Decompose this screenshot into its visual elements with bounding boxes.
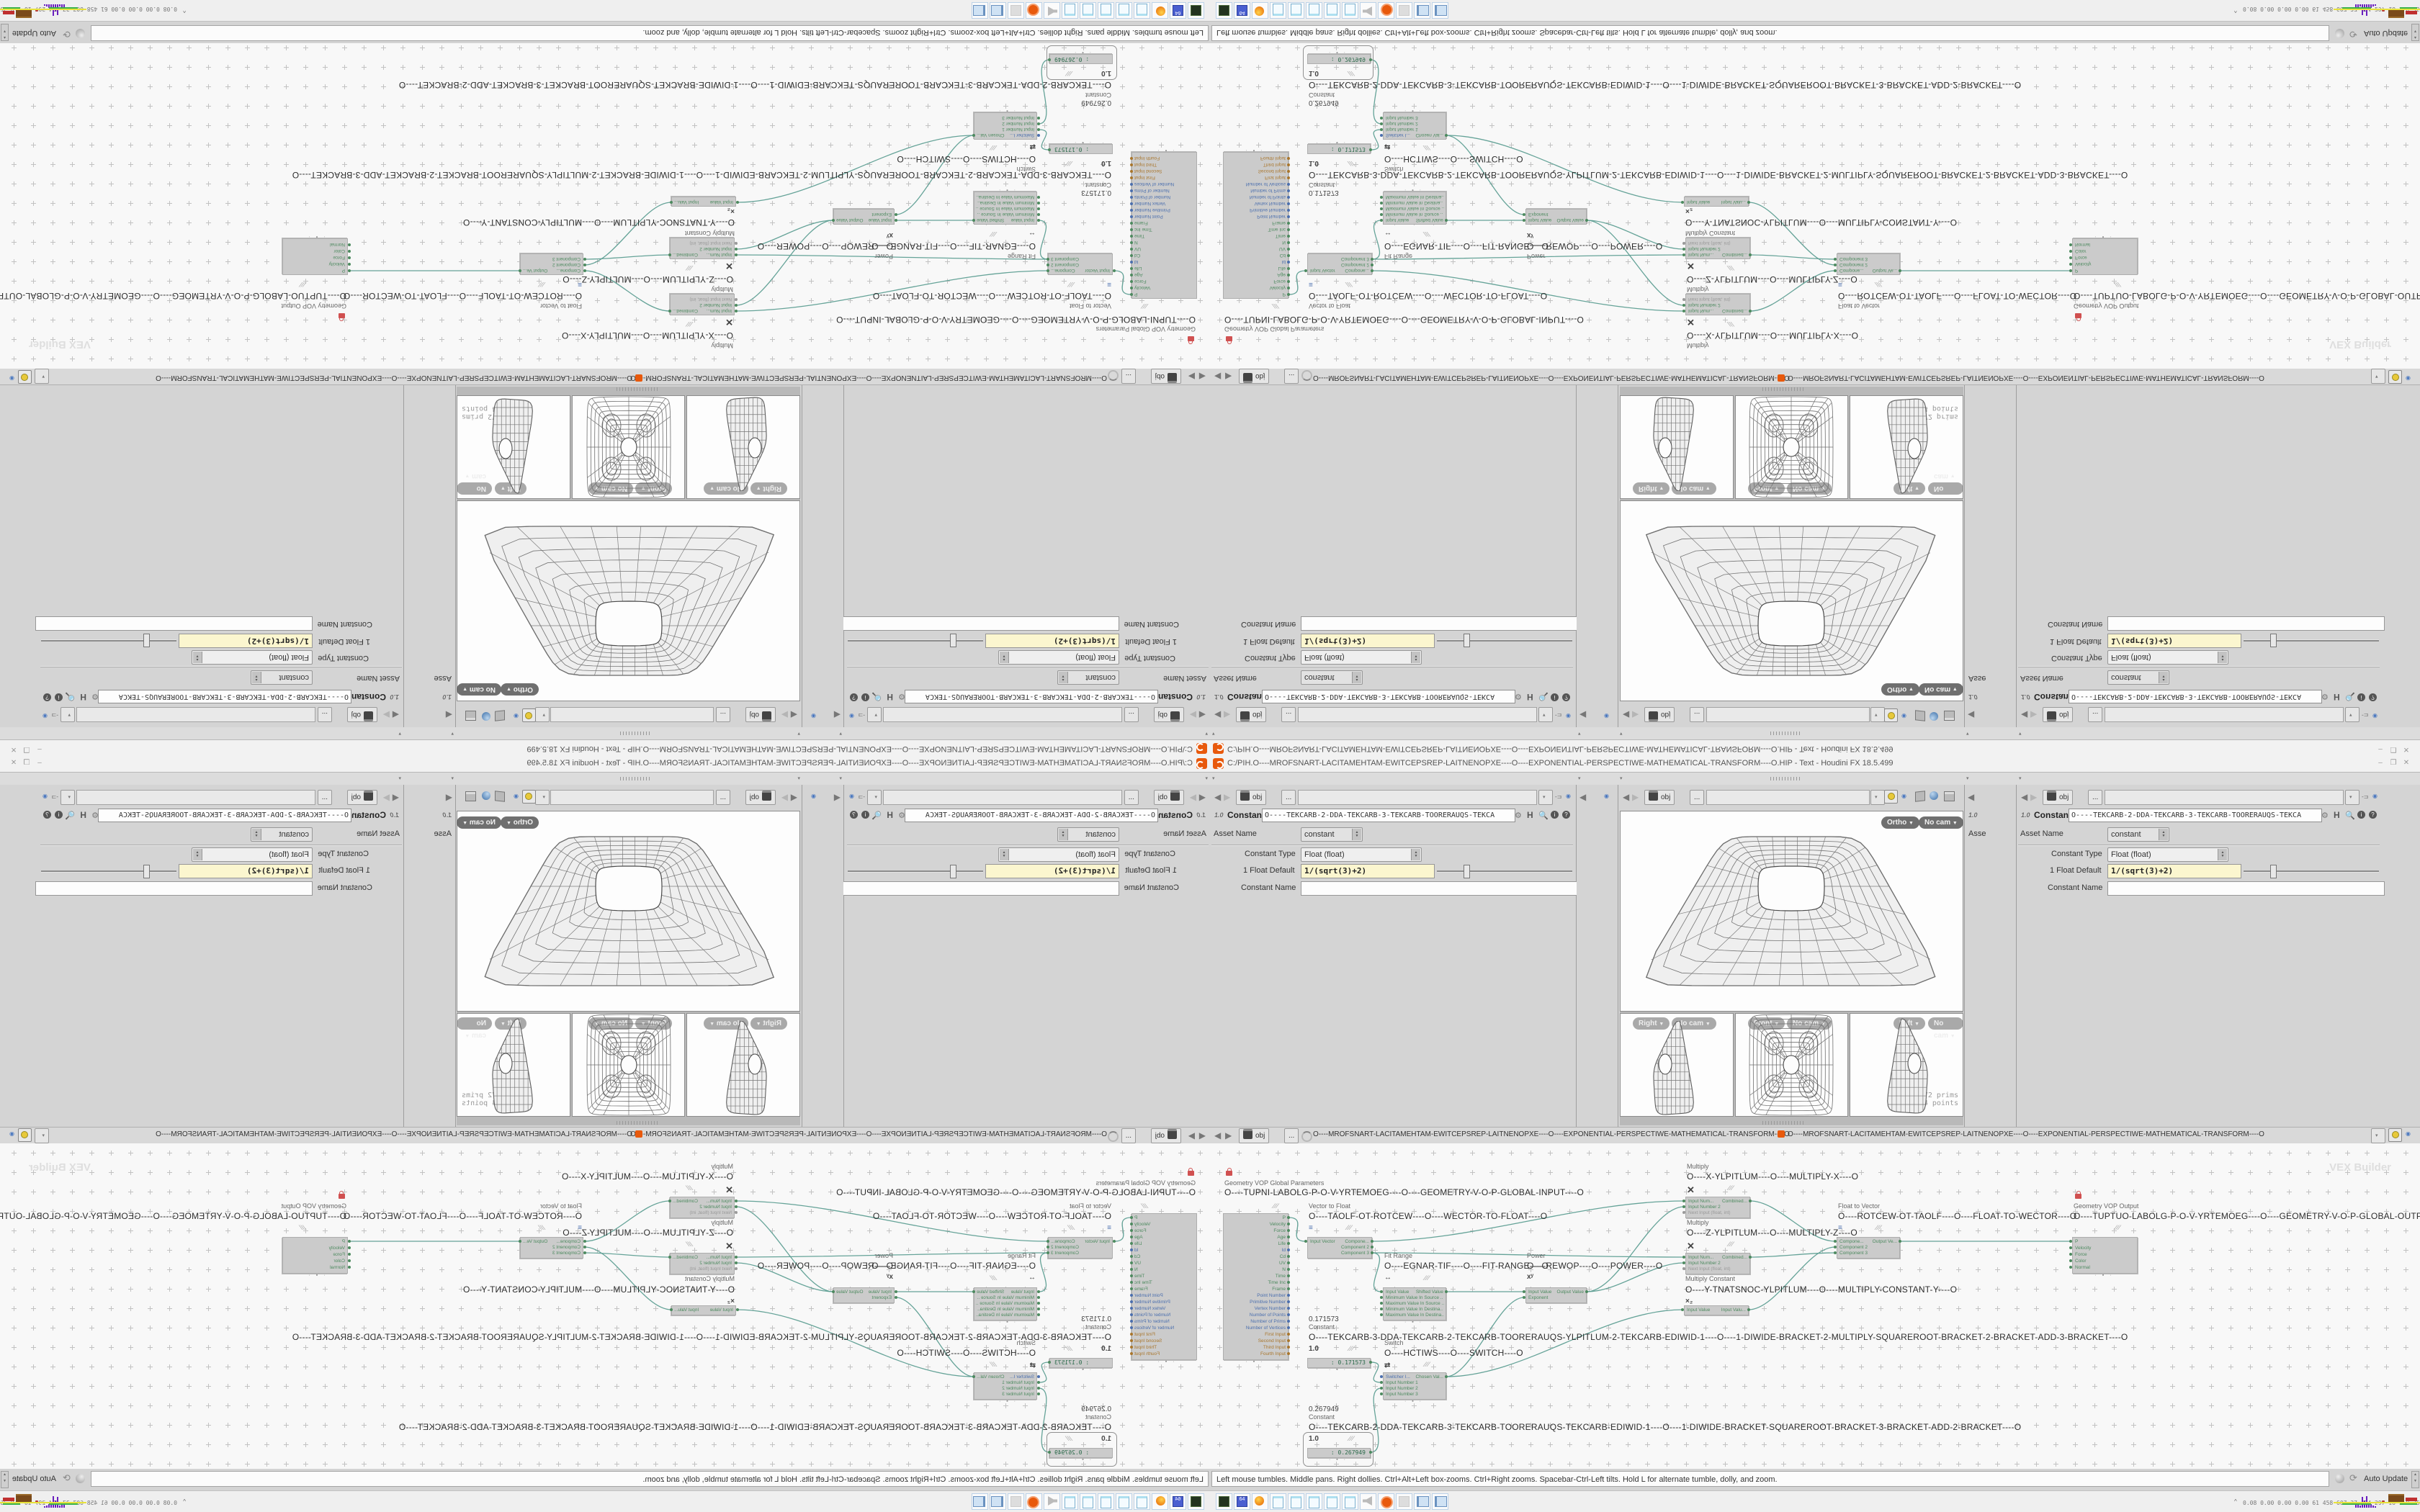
input-dot[interactable] [1523,213,1525,216]
node-body[interactable]: Input Num...Combined...Input Number 2Nex… [670,238,735,259]
input-port-label[interactable]: Input Number 3 [1002,1392,1034,1398]
grid-panel-icon[interactable] [1944,711,1955,721]
taskbar-firefox-icon[interactable] [1252,2,1268,19]
close-button[interactable]: ✕ [2401,744,2411,754]
output-port-label[interactable]: Component 3 [1051,1251,1079,1256]
slider-track[interactable] [1437,639,1572,642]
pane-collapse-icon[interactable]: ▾ [1205,775,1208,781]
path-field[interactable] [76,790,315,805]
forward-icon[interactable]: ▶ [781,792,788,802]
asset-name-dropdown[interactable]: constant▲▼ [251,827,313,842]
output-dot[interactable] [1287,1229,1290,1232]
breadcrumb-obj[interactable]: obj [1154,790,1184,805]
input-dot[interactable] [348,256,351,259]
taskbar-houdini-icon[interactable] [1378,1493,1394,1510]
output-port-label[interactable]: Number of Points [1250,194,1286,199]
node-body[interactable]: Switcher I...Chosen Val...Input Number 1… [974,112,1037,140]
input-port-label[interactable]: Minimum Value In Destina.. [1386,199,1443,205]
output-port-label[interactable]: UV [1279,1261,1286,1266]
input-dot[interactable] [1304,1240,1307,1243]
output-port-label[interactable]: Input Valu... [1721,199,1746,204]
pane-drag-handle[interactable] [1770,732,1802,735]
output-port-label[interactable]: Combined... [1722,251,1747,257]
cam-pill[interactable]: No cam ▼ [1919,816,1963,829]
path-field[interactable] [1706,707,1870,722]
window-titlebar[interactable]: C:/PIH.O----MROFSNART-LACITAMEHTAM-EWITC… [0,739,1210,756]
back-icon[interactable]: ◀ [791,792,797,802]
input-dot[interactable] [348,243,351,246]
forward-icon[interactable]: ▶ [383,710,390,720]
output-dot[interactable] [1287,241,1290,244]
gear-icon[interactable]: ⚙ [91,811,99,820]
output-dot[interactable] [1287,1300,1290,1303]
input-dot[interactable] [1037,219,1040,222]
forward-icon[interactable]: ▶ [1224,792,1230,802]
breadcrumb-more[interactable]: ... [318,707,332,722]
node-body[interactable]: Input Num...Combined...Input Number 2Nex… [670,294,735,315]
input-dot[interactable] [736,201,739,204]
output-dot[interactable] [1130,228,1133,231]
pane-drag-handle[interactable] [1762,387,1806,391]
constant-vop-icon[interactable]: 1.0 [1214,693,1224,701]
input-dot[interactable] [895,1296,897,1299]
output-port-label[interactable]: Output Ve... [1873,267,1897,273]
float-default-field[interactable]: 1/(sqrt(3)+2) [2107,864,2241,878]
search-icon[interactable]: 🔍 [1538,811,1549,820]
back-icon[interactable]: ◀ [791,710,797,720]
input-dot[interactable] [1037,1392,1040,1395]
highlight-toggle[interactable] [1884,790,1898,804]
float-default-field[interactable]: 1/(sqrt(3)+2) [2107,634,2241,648]
pane-collapse-icon[interactable]: ▾ [797,775,800,781]
node-body[interactable]: Input ValueOutput ValueExponent [1525,209,1587,225]
output-dot[interactable] [1287,1268,1290,1271]
slider-handle[interactable] [950,865,956,878]
input-port-label[interactable]: Maximum Value In Source .. [976,1301,1034,1307]
refresh-icon[interactable]: ⟳ [63,1472,71,1484]
asset-name-dropdown[interactable]: constant▲▼ [2107,827,2169,842]
pin-icon[interactable]: -⊐ [2362,712,2368,719]
asset-name-dropdown[interactable]: constant▲▼ [1057,827,1119,842]
taskbar-notepad-icon[interactable] [1270,2,1286,19]
output-dot[interactable] [1287,170,1290,173]
output-port-label[interactable]: Input Valu... [674,199,699,204]
input-port-label[interactable]: Switcher I... [1386,1374,1410,1380]
output-port-label[interactable]: Id [1282,258,1286,264]
path-dropdown[interactable]: ▾ [1870,707,1885,722]
output-port-label[interactable]: Component 2 [1341,1245,1369,1251]
pane-drag-handle[interactable] [1770,777,1802,780]
output-dot[interactable] [1287,1352,1290,1355]
path-field[interactable] [883,707,1122,722]
input-dot[interactable] [735,1200,738,1202]
output-port-label[interactable]: Primitive Number [1250,207,1286,212]
node-body[interactable]: : 0.171573 [1307,1358,1371,1368]
input-port-label[interactable]: Component 2 [552,261,581,267]
node-name[interactable]: O----ROTCEW-OT-TAOLF----O----FLOAT-TO-WE… [344,291,582,301]
output-dot[interactable] [1130,170,1133,173]
cam-pill[interactable]: No cam ▼ [457,482,492,495]
forward-icon[interactable]: ▶ [1632,792,1639,802]
constant-type-dropdown[interactable]: Float (float)▲▼ [192,650,313,665]
tray-caret[interactable]: ^ [2234,1498,2237,1505]
back-icon[interactable]: ◀ [1199,792,1206,802]
input-dot[interactable] [1037,1313,1040,1316]
output-dot[interactable] [1287,1223,1290,1225]
back-icon[interactable]: ◀ [1214,792,1221,802]
output-dot[interactable] [668,1256,671,1259]
output-port-label[interactable]: Force [1273,278,1286,284]
output-dot[interactable] [1287,183,1290,186]
linked-icon[interactable]: ◉ [811,713,816,719]
asset-name-dropdown[interactable]: constant▲▼ [1301,827,1363,842]
output-dot[interactable] [1287,248,1290,251]
output-dot[interactable] [1130,1352,1133,1355]
input-port-label[interactable]: Input Value [1011,1290,1034,1295]
taskbar-scroll-icon[interactable] [972,1493,988,1510]
constant-name-field[interactable] [35,616,313,631]
taskbar-notepad-icon[interactable] [1288,1493,1304,1510]
input-dot[interactable] [348,1240,351,1243]
input-dot[interactable] [735,298,738,301]
input-port-label[interactable]: Next Input (float, int) [1688,1210,1731,1216]
input-port-label[interactable]: Input Number 3 [1002,114,1034,120]
output-dot[interactable] [1130,1223,1133,1225]
input-dot[interactable] [1037,117,1040,120]
output-dot[interactable] [1899,1240,1901,1243]
output-port-label[interactable]: Combined... [673,251,698,257]
output-port-label[interactable]: N [1282,1267,1286,1273]
forward-icon[interactable]: ▶ [1224,710,1230,720]
output-dot[interactable] [1130,235,1133,238]
persp-pill[interactable]: Ortho ▼ [1881,683,1919,696]
output-dot[interactable] [1287,293,1290,296]
right-pill[interactable]: Right ▼ [1633,1017,1670,1030]
back-icon[interactable]: ◀ [1199,710,1206,720]
input-port-label[interactable]: Input Num... [1688,251,1713,257]
pane-collapse-icon[interactable]: ▾ [398,731,401,737]
linked-icon[interactable]: ◉ [9,1130,14,1137]
taskbar-notepad-icon[interactable] [1306,1493,1322,1510]
input-port-label[interactable]: Component 3 [1839,256,1868,261]
input-port-label[interactable]: Color [333,248,345,253]
cam-pill[interactable]: No cam ▼ [588,482,633,495]
breadcrumb-more[interactable]: ... [1121,369,1136,384]
breadcrumb-obj[interactable]: obj [1239,1128,1269,1143]
input-port-label[interactable]: Switcher I... [1010,132,1034,138]
input-port-label[interactable]: Input Num... [707,251,732,257]
node-name[interactable]: O----REWOP----O----POWER----O [1527,241,1662,251]
output-port-label[interactable]: Number of Vertices [1246,1326,1286,1331]
output-port-label[interactable]: Velocity [1134,284,1150,290]
output-dot[interactable] [1747,1308,1750,1311]
input-dot[interactable] [2069,263,2072,266]
output-dot[interactable] [1047,1240,1049,1243]
linked-icon[interactable]: ◉ [514,793,519,799]
output-port-label[interactable]: Cd [1134,1254,1140,1260]
viewport-area[interactable]: Ortho ▼ No cam ▼ Right ▼ No cam ▼ Front … [457,811,800,1125]
output-dot[interactable] [1047,258,1049,261]
output-dot[interactable] [1371,1246,1373,1248]
output-port-label[interactable]: Input Valu... [674,1308,699,1313]
output-dot[interactable] [1287,215,1290,218]
node-body[interactable]: Input ValueShifted ValueMinimum Value In… [1383,1287,1446,1320]
node-body[interactable]: Input Num...Combined...Input Number 2Nex… [670,1253,735,1274]
search-icon[interactable]: 🔍 [2345,811,2355,820]
slider-handle[interactable] [1464,634,1470,647]
slider-handle[interactable] [143,634,150,647]
input-dot[interactable] [583,1251,586,1254]
output-dot[interactable] [1287,228,1290,231]
highlight-toggle[interactable] [18,370,32,384]
output-dot[interactable] [1371,269,1373,272]
output-dot[interactable] [1048,148,1051,151]
node-body[interactable]: Input VectorCompone...Component 2Compone… [1048,253,1113,275]
path-field[interactable] [2105,707,2344,722]
linked-icon[interactable]: ◉ [2406,375,2411,382]
output-port-label[interactable]: Combined... [673,1199,698,1205]
breadcrumb-more[interactable]: ... [318,790,332,805]
output-port-label[interactable]: Life [1134,1241,1142,1247]
persp-view[interactable] [457,811,800,1012]
node-name[interactable]: O----TEKCARB-3-DDA-TEKCARB-2-TEKCARB-TOO… [1309,1332,2128,1342]
node-body[interactable]: PVelocityForceAgeLifeIdCdUVNTimeTime Inc… [1223,152,1289,299]
node-name-field[interactable]: O----TEKCARB-2-DDA-TEKCARB-3-TEKCARB-TOO… [98,809,351,822]
output-dot[interactable] [832,1290,835,1293]
node-body[interactable]: Compone...Output Ve...Component 2Compone… [1837,253,1900,275]
output-dot[interactable] [1130,1255,1133,1258]
output-dot[interactable] [1130,261,1133,264]
output-port-label[interactable]: UV [1134,1261,1141,1266]
input-port-label[interactable]: Component 2 [1839,1245,1868,1251]
input-port-label[interactable]: Minimum Value In Source .. [977,211,1034,217]
houdini-help-icon[interactable]: H [1527,692,1533,702]
output-dot[interactable] [1287,222,1290,225]
output-dot[interactable] [1371,264,1373,266]
taskbar-speaker-icon[interactable] [1360,1493,1376,1510]
linked-icon[interactable]: ◉ [9,375,14,382]
output-dot[interactable] [1287,267,1290,270]
input-dot[interactable] [1681,201,1684,204]
output-dot[interactable] [1287,157,1290,160]
path-field[interactable] [76,707,315,722]
forward-icon[interactable]: ▶ [1190,792,1196,802]
info-icon[interactable]: i [1551,693,1559,701]
node-name[interactable]: O----EGNAR-TIF----O----FIT-RANGE----O [1384,241,1549,251]
output-port-label[interactable]: Fourth Input [1260,1351,1286,1357]
input-dot[interactable] [1037,1375,1040,1378]
taskbar-houdini-icon[interactable] [1026,2,1042,19]
input-dot[interactable] [1682,1211,1685,1214]
right-pill[interactable]: Right ▼ [1633,482,1670,495]
input-dot[interactable] [895,219,897,222]
input-dot[interactable] [1380,1392,1383,1395]
input-dot[interactable] [1834,269,1837,272]
taskbar-console-icon[interactable] [1188,1493,1204,1510]
input-port-label[interactable]: Component 3 [1839,1251,1868,1256]
network-editor[interactable]: VEX Builder Geometry VOP Global Paramete… [0,43,1210,369]
input-port-label[interactable]: Minimum Value In Source .. [1386,1295,1443,1301]
taskbar-notepad-icon[interactable] [1324,1493,1340,1510]
output-dot[interactable] [1287,1346,1290,1349]
viewport-area[interactable]: Ortho ▼ No cam ▼ Right ▼ No cam ▼ Front … [457,387,800,701]
float-default-field[interactable]: 1/(sqrt(3)+2) [985,634,1119,648]
network-editor[interactable]: VEX Builder Geometry VOP Global Paramete… [1210,43,2420,369]
output-dot[interactable] [1130,1333,1133,1336]
output-dot[interactable] [1047,1246,1049,1248]
input-port-label[interactable]: Velocity [2075,1246,2091,1251]
float-default-field[interactable]: 1/(sqrt(3)+2) [179,634,313,648]
input-port-label[interactable]: Input Number 1 [1002,126,1034,132]
output-port-label[interactable]: Vertex Number [1134,1306,1165,1312]
back-icon[interactable]: ◀ [1968,792,1974,802]
output-port-label[interactable]: N [1134,1267,1138,1273]
node-name[interactable]: O----Y-TNATSNOC-YLPITLUM----O----MULTIPL… [1685,217,1957,228]
input-port-label[interactable]: Velocity [2075,261,2091,266]
input-port-label[interactable]: Input Number 3 [1386,1392,1418,1398]
constant-type-dropdown[interactable]: Float (float)▲▼ [192,847,313,862]
help-icon[interactable]: ? [1562,811,1570,819]
output-dot[interactable] [1130,1307,1133,1310]
cam-pill[interactable]: No cam ▼ [704,482,748,495]
output-port-label[interactable]: Primitive Number [1134,207,1170,212]
output-port-label[interactable]: Combined... [1722,1255,1747,1261]
input-port-label[interactable]: Minimum Value In Source .. [977,1295,1034,1301]
pin-icon[interactable]: -⊐ [1555,712,1561,719]
output-dot[interactable] [1047,264,1049,266]
highlight-toggle[interactable] [2388,1128,2402,1142]
input-port-label[interactable]: Input Value [710,199,733,204]
input-port-label[interactable]: Input Number 1 [1002,1380,1034,1386]
input-dot[interactable] [735,304,738,307]
taskbar-notepad-icon[interactable] [1080,2,1096,19]
node-name-field[interactable]: O----TEKCARB-2-DDA-TEKCARB-3-TEKCARB-TOO… [1262,690,1515,703]
houdini-help-icon[interactable]: H [2334,692,2340,702]
output-port-label[interactable]: Shifted Value [1416,1290,1443,1295]
output-port-label[interactable]: First Input [1134,1332,1155,1338]
path-field[interactable] [550,790,714,805]
taskbar-console-icon[interactable] [1216,2,1232,19]
pin-icon[interactable]: -⊐ [52,712,58,719]
forward-icon[interactable]: ▶ [2030,710,2037,720]
gear-icon[interactable]: ⚙ [898,692,905,701]
node-body[interactable]: Input ValueShifted ValueMinimum Value In… [974,192,1037,225]
viewport-area[interactable]: Ortho ▼ No cam ▼ Right ▼ No cam ▼ Front … [1620,387,1963,701]
output-dot[interactable] [1287,1294,1290,1297]
input-port-label[interactable]: Input Number 2 [1688,1261,1721,1266]
input-port-label[interactable]: Input Num... [707,1255,732,1261]
input-port-label[interactable]: Input Value [1386,217,1409,222]
output-port-label[interactable]: Age [1134,1235,1143,1241]
pane-collapse-icon[interactable]: ▾ [1620,731,1623,737]
output-port-label[interactable]: P [1134,1215,1137,1221]
input-port-label[interactable]: Input Number 2 [699,246,732,251]
output-dot[interactable] [1287,287,1290,289]
back-icon[interactable]: ◀ [834,792,841,802]
output-port-label[interactable]: Number of Points [1250,1313,1286,1318]
output-dot[interactable] [1749,310,1752,312]
input-port-label[interactable]: Next Input (float, int) [1688,296,1731,302]
node-body[interactable]: PVelocityForceAgeLifeIdCdUVNTimeTime Inc… [1131,152,1197,299]
node-body[interactable]: Input ValueOutput ValueExponent [833,209,895,225]
output-port-label[interactable]: Compone... [1051,267,1075,273]
output-dot[interactable] [1287,1313,1290,1316]
constant-vop-icon[interactable]: 1.0 [390,811,399,819]
output-dot[interactable] [1130,189,1133,192]
linked-icon[interactable]: ◉ [42,713,48,719]
slider-track[interactable] [848,639,983,642]
input-dot[interactable] [348,1253,351,1256]
output-port-label[interactable]: Output Value [836,1290,863,1295]
gear-icon[interactable]: ⚙ [898,811,905,820]
output-dot[interactable] [1287,261,1290,264]
input-dot[interactable] [1380,134,1383,137]
node-body[interactable]: PVelocityForceColorNormal [2072,238,2138,275]
breadcrumb-more[interactable]: ... [716,790,730,805]
back-icon[interactable]: ◀ [1199,372,1206,382]
breadcrumb-obj[interactable]: obj [745,790,776,805]
asset-name-dropdown[interactable]: constant▲▼ [1301,670,1363,685]
taskbar-console-icon[interactable] [1188,2,1204,19]
breadcrumb-vopnet[interactable]: O----MROFSNART-LACITAMEHTAM-EWITCEPSREP-… [156,374,632,382]
input-dot[interactable] [1834,1240,1837,1243]
pane-drag-handle[interactable] [614,1121,658,1125]
taskbar-speaker-icon[interactable] [1044,1493,1060,1510]
input-dot[interactable] [348,263,351,266]
output-dot[interactable] [1130,1339,1133,1342]
pane-collapse-icon[interactable]: ▾ [1966,775,1969,781]
output-dot[interactable] [832,219,835,222]
output-dot[interactable] [1371,1240,1373,1243]
input-dot[interactable] [1682,242,1685,245]
taskbar-c64-icon[interactable]: 64 [1170,2,1186,19]
back-icon[interactable]: ◀ [1579,792,1586,802]
input-port-label[interactable]: Color [333,1259,345,1264]
input-dot[interactable] [348,1259,351,1262]
node-name[interactable]: O----HCTIWS----O----SWITCH----O [1384,1348,1523,1358]
output-port-label[interactable]: Number of Prims [1250,1319,1286,1325]
persp-pill[interactable]: Ortho ▼ [501,683,539,696]
input-dot[interactable] [2069,256,2072,259]
node-name[interactable]: O----TUPNI-LABOLG-P-O-V-YRTEMOEG----O---… [1224,315,1584,325]
input-port-label[interactable]: Input Number 2 [699,302,732,307]
input-dot[interactable] [735,248,738,251]
output-dot[interactable] [1130,241,1133,244]
constant-vop-icon[interactable]: 1.0 [1196,811,1206,819]
constant-type-dropdown[interactable]: Float (float)▲▼ [2107,847,2228,862]
back-icon[interactable]: ◀ [1199,1130,1206,1140]
linked-icon[interactable]: ◉ [2372,713,2378,719]
restore-button[interactable]: ❐ [2388,758,2398,768]
highlight-toggle[interactable] [18,1128,32,1142]
breadcrumb-obj[interactable]: obj [1236,707,1266,722]
breadcrumb-obj[interactable]: obj [1644,790,1675,805]
input-port-label[interactable]: P [342,267,345,273]
search-icon[interactable]: 🔍 [871,811,882,820]
constant-vop-icon[interactable]: 1.0 [390,693,399,701]
minimize-button[interactable]: – [2375,744,2385,754]
float-default-field[interactable]: 1/(sqrt(3)+2) [1301,864,1435,878]
output-dot[interactable] [972,1290,975,1293]
persp-pill[interactable]: Ortho ▼ [1881,816,1919,829]
input-dot[interactable] [1037,1296,1040,1299]
shading-cube-icon[interactable] [495,710,505,721]
output-port-label[interactable]: UV [1279,246,1286,251]
input-dot[interactable] [1682,253,1685,256]
front-pill[interactable]: Front ▼ [635,482,672,495]
input-port-label[interactable]: Next Input (float, int) [689,1210,732,1216]
help-icon[interactable]: ? [43,811,51,819]
